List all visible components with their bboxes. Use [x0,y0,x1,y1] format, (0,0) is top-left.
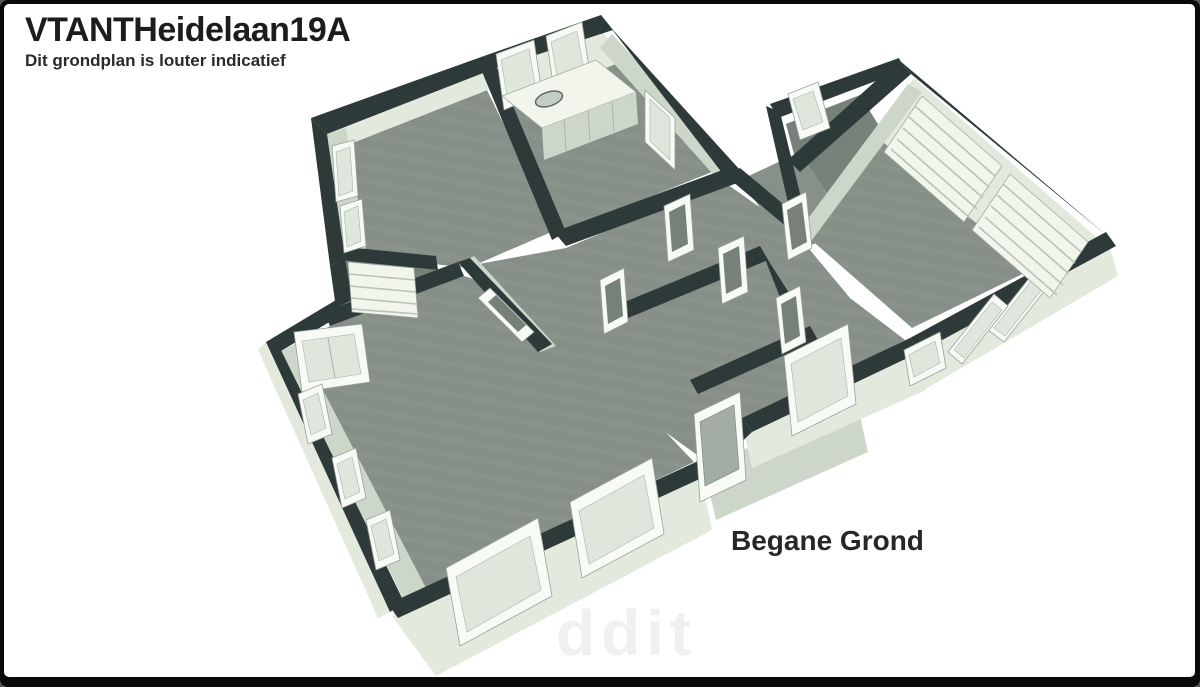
header: VTANTHeidelaan19A Dit grondplan is loute… [25,12,350,71]
floorplan-canvas: ddit VTANTHeidelaan19A Dit grondplan is … [4,4,1195,677]
left-room-window-2 [340,199,366,253]
floorplan-3d-render [4,4,1195,677]
page-title: VTANTHeidelaan19A [25,12,350,49]
alcove-window [294,324,370,392]
staircase [348,262,418,318]
hall-door-1 [664,194,694,262]
floor-label: Begane Grond [731,525,924,557]
left-room-window-1 [332,140,358,202]
hall-door-2 [718,236,748,304]
page-subtitle: Dit grondplan is louter indicatief [25,51,350,71]
watermark: ddit [556,596,697,670]
image-frame: ddit VTANTHeidelaan19A Dit grondplan is … [0,0,1200,687]
hall-door-4 [600,268,628,334]
